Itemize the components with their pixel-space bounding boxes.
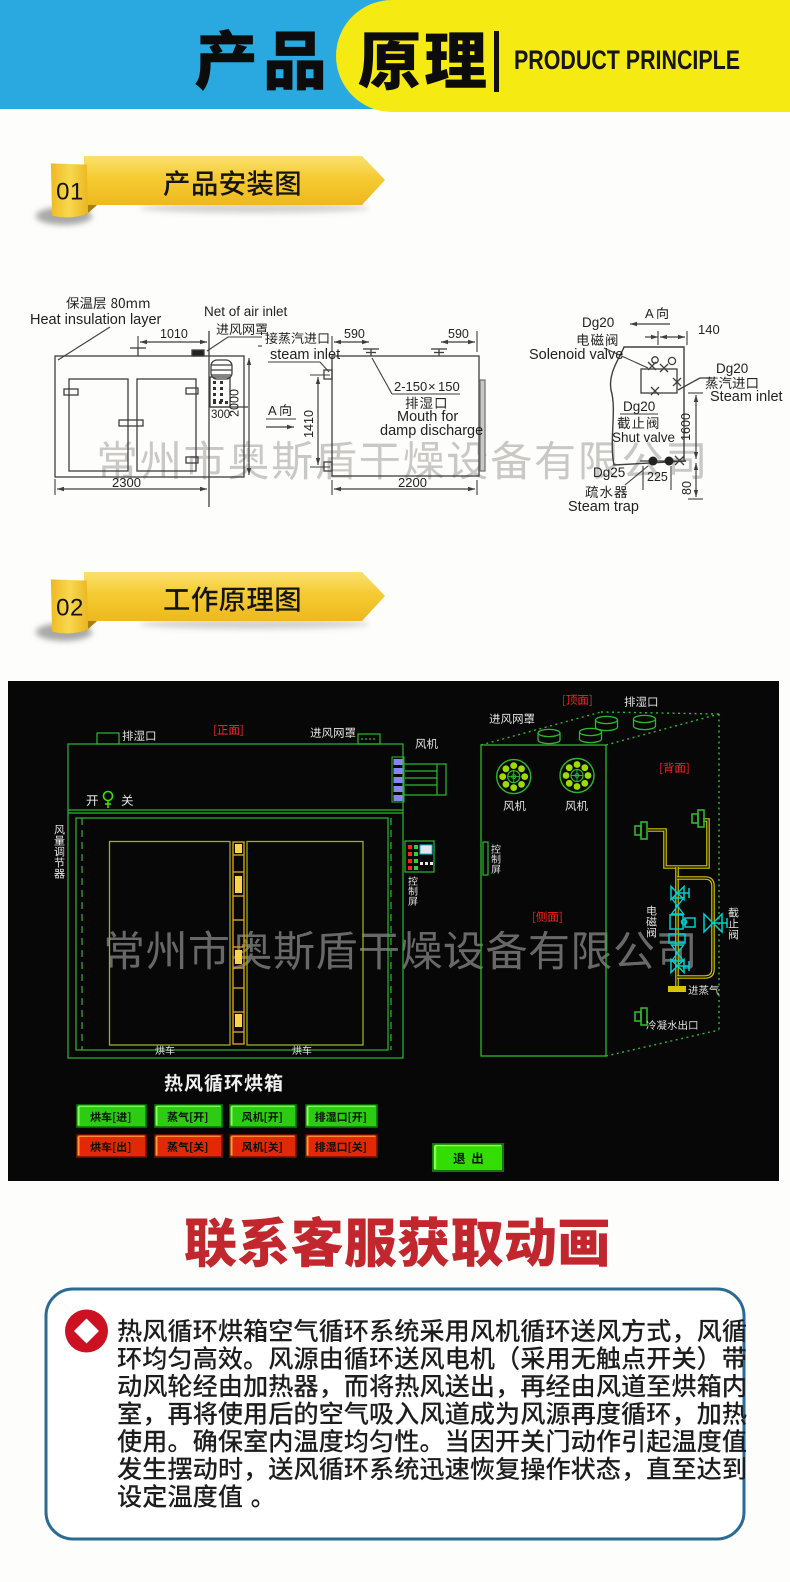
svg-text:1010: 1010: [160, 327, 188, 341]
svg-text:590: 590: [344, 327, 365, 341]
svg-text:Dg20: Dg20: [623, 399, 655, 414]
svg-text:1600: 1600: [679, 413, 693, 441]
svg-text:300: 300: [211, 409, 230, 421]
svg-text:steam inlet: steam inlet: [270, 347, 340, 363]
svg-text:590: 590: [448, 327, 469, 341]
svg-text:PRODUCT PRINCIPLE: PRODUCT PRINCIPLE: [514, 45, 740, 75]
svg-text:Net of air inlet: Net of air inlet: [204, 304, 288, 319]
svg-text:150: 150: [438, 379, 460, 394]
svg-text:01: 01: [56, 179, 84, 206]
svg-text:1410: 1410: [302, 410, 316, 438]
svg-text:Solenoid valve: Solenoid valve: [529, 347, 623, 363]
svg-text:Dg25: Dg25: [593, 465, 625, 480]
svg-text:×: ×: [428, 379, 436, 394]
svg-text:A: A: [268, 403, 277, 418]
svg-text:225: 225: [647, 470, 668, 484]
svg-text:Dg20: Dg20: [716, 361, 748, 376]
svg-text:140: 140: [698, 322, 720, 337]
svg-text:2300: 2300: [112, 475, 141, 490]
svg-text:2-150: 2-150: [394, 379, 427, 394]
svg-text:02: 02: [56, 595, 84, 622]
svg-text:80: 80: [680, 481, 694, 495]
svg-text:Heat insulation layer: Heat insulation layer: [30, 312, 162, 328]
svg-text:Steam inlet: Steam inlet: [710, 389, 783, 405]
svg-text:Dg20: Dg20: [582, 315, 614, 330]
svg-text:2200: 2200: [398, 475, 427, 490]
svg-text:A: A: [645, 306, 654, 321]
svg-text:Shut valve: Shut valve: [612, 430, 675, 445]
svg-text:Steam trap: Steam trap: [568, 499, 639, 515]
svg-text:damp discharge: damp discharge: [380, 423, 483, 439]
